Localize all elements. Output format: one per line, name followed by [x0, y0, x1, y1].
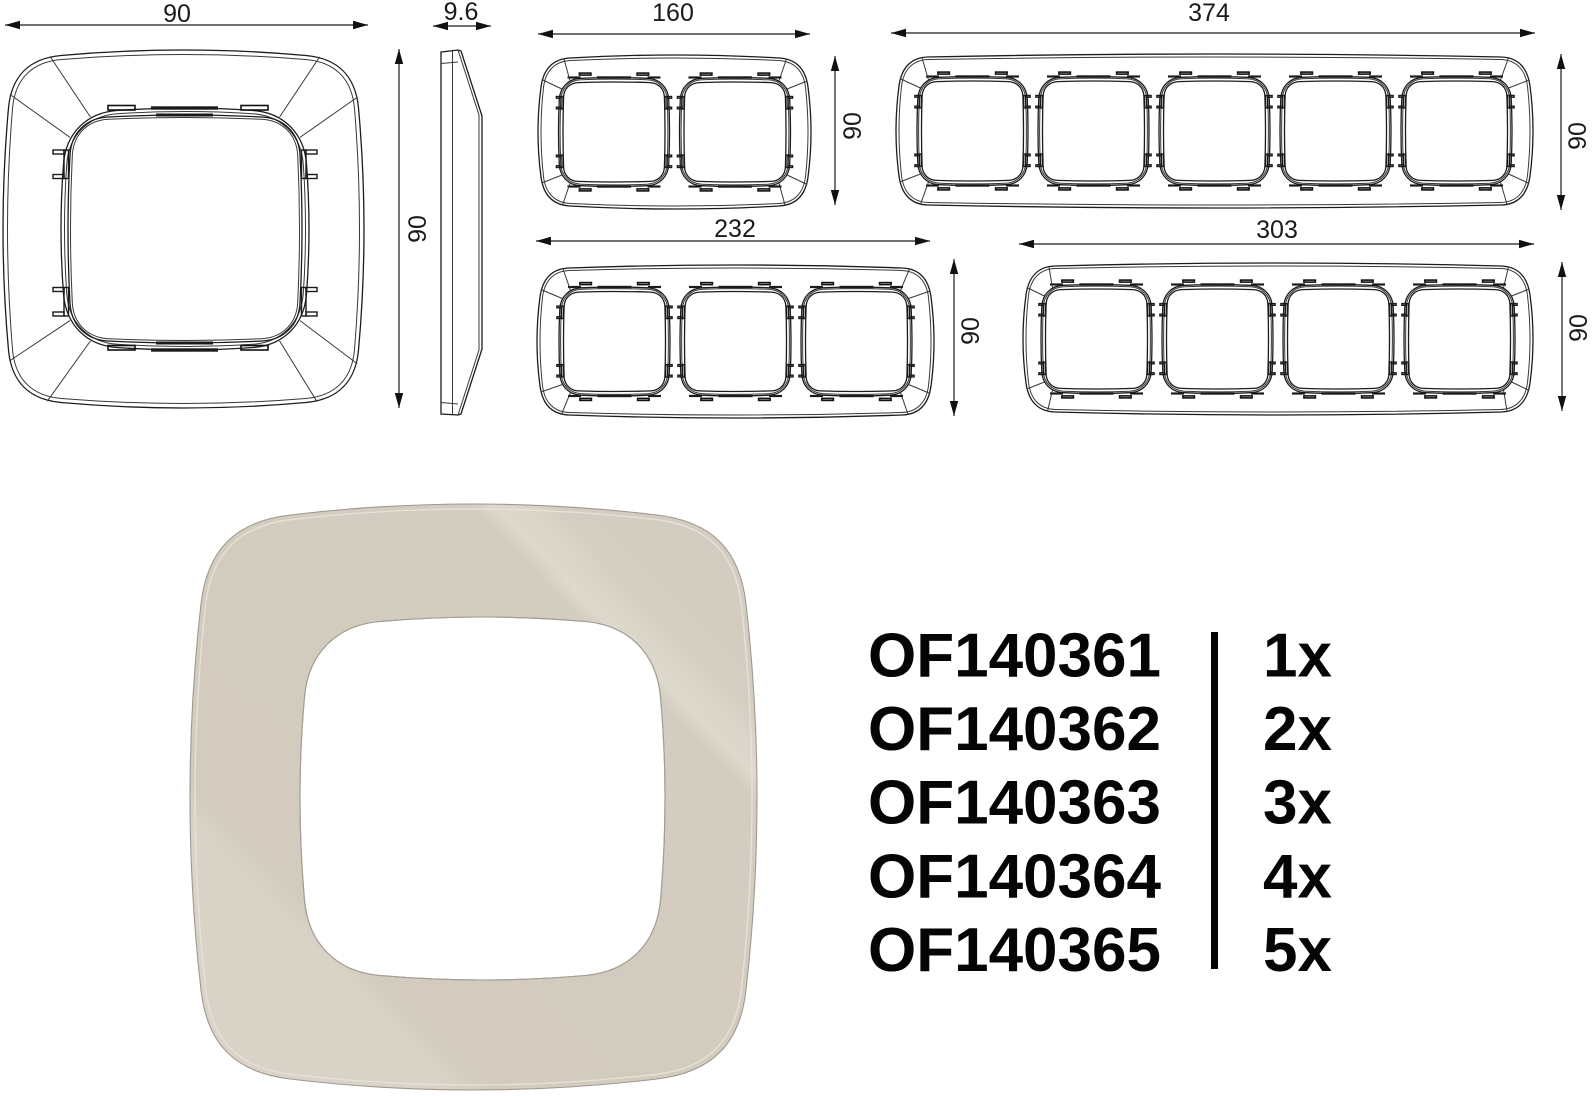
svg-text:OF140364: OF140364	[868, 842, 1162, 911]
svg-text:4x: 4x	[1263, 842, 1332, 911]
svg-text:OF140361: OF140361	[868, 622, 1161, 691]
svg-text:90: 90	[1565, 314, 1592, 342]
svg-text:90: 90	[1564, 122, 1592, 150]
svg-text:5x: 5x	[1263, 916, 1332, 985]
svg-text:3x: 3x	[1263, 769, 1332, 838]
svg-text:OF140363: OF140363	[868, 769, 1161, 838]
svg-text:374: 374	[1188, 0, 1230, 27]
svg-text:232: 232	[714, 215, 756, 243]
svg-text:90: 90	[839, 112, 867, 140]
svg-text:90: 90	[163, 0, 191, 28]
svg-text:90: 90	[404, 215, 432, 243]
svg-text:90: 90	[957, 317, 985, 345]
svg-text:1x: 1x	[1263, 622, 1332, 691]
svg-text:160: 160	[652, 0, 694, 27]
svg-text:OF140362: OF140362	[868, 695, 1161, 764]
svg-text:OF140365: OF140365	[868, 916, 1161, 985]
svg-text:9.6: 9.6	[444, 0, 479, 26]
svg-text:2x: 2x	[1263, 695, 1332, 764]
svg-text:303: 303	[1256, 216, 1298, 244]
